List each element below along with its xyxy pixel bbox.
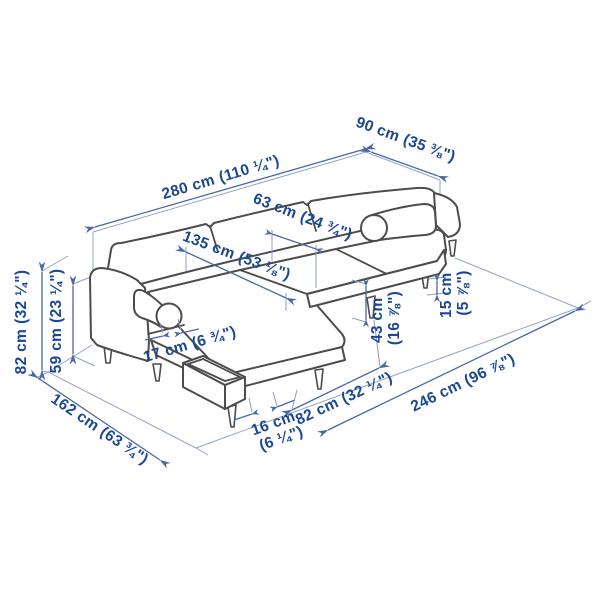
label-seat-front-width: 82 cm(32 ¼") [293,369,395,429]
label-armrest-height: 59 cm(23 ¼") [48,269,65,374]
label-depth-with-chaise: 162 cm(63 ¾") [48,390,152,468]
sofa-illustration [90,188,460,427]
dim-base-length [328,311,575,430]
label-total-depth: 90 cm(35 ⅜") [353,114,457,166]
label-total-height: 82 cm(32 ¼") [13,270,30,375]
label-seat-height: 43 cm (16 ⅞") [369,291,403,345]
right-bolster-end [361,215,387,241]
label-leg-height: 15 cm (5 ⅞") [438,268,472,318]
diagram-canvas: 280 cm(110 ¼") 90 cm(35 ⅜") 63 cm(24 ¾")… [0,0,600,600]
sofa-dimension-diagram: 280 cm(110 ¼") 90 cm(35 ⅜") 63 cm(24 ¾")… [0,0,600,600]
